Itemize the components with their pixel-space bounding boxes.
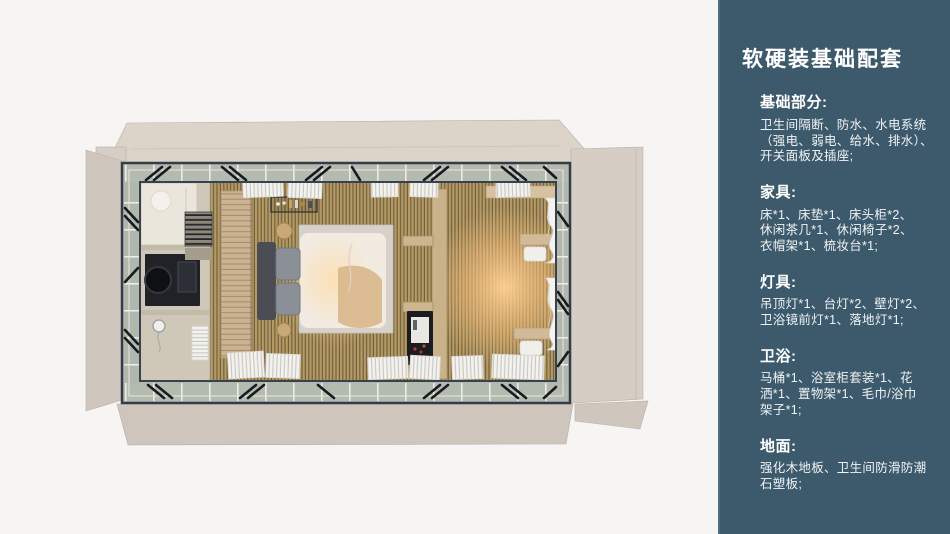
spec-section-heading: 家具:	[760, 183, 938, 203]
spec-section-flooring: 地面: 强化木地板、卫生间防滑防潮 石塑板;	[760, 437, 938, 493]
spec-section-bathroom: 卫浴: 马桶*1、浴室柜套装*1、花 洒*1、置物架*1、毛巾/浴巾 架子*1;	[760, 347, 938, 419]
vanity-mirror	[145, 267, 171, 293]
panel-right-wing	[571, 147, 643, 403]
spec-section-body: 吊顶灯*1、台灯*2、壁灯*2、 卫浴镜前灯*1、落地灯*1;	[760, 297, 938, 329]
bed-blanket	[338, 266, 382, 328]
spec-section-body: 强化木地板、卫生间防滑防潮 石塑板;	[760, 461, 938, 493]
spec-section-body: 卫生间隔断、防水、水电系统 （强电、弱电、给水、排水）、 开关面板及插座;	[760, 118, 938, 165]
towel-roll	[151, 191, 171, 211]
panel-bottom	[117, 404, 573, 445]
bed-pillow	[276, 283, 300, 315]
spec-section-furniture: 家具: 床*1、床垫*1、床头柜*2、 休闲茶几*1、休闲椅子*2、 衣帽架*1…	[760, 183, 938, 255]
bedside-stool	[277, 323, 291, 337]
spec-section-body: 马桶*1、浴室柜套装*1、花 洒*1、置物架*1、毛巾/浴巾 架子*1;	[760, 371, 938, 418]
room-interior	[140, 177, 580, 381]
spec-section-basics: 基础部分: 卫生间隔断、防水、水电系统 （强电、弱电、给水、排水）、 开关面板及…	[760, 93, 938, 165]
spec-section-heading: 卫浴:	[760, 347, 938, 367]
spec-section-lighting: 灯具: 吊顶灯*1、台灯*2、壁灯*2、 卫浴镜前灯*1、落地灯*1;	[760, 273, 938, 329]
spec-section-heading: 灯具:	[760, 273, 938, 293]
spec-section-body: 床*1、床垫*1、床头柜*2、 休闲茶几*1、休闲椅子*2、 衣帽架*1、梳妆台…	[760, 208, 938, 255]
panel-left-wing	[86, 150, 122, 411]
sidebar-title: 软硬装基础配套	[742, 46, 938, 73]
shower-head	[153, 320, 165, 332]
panel-top	[111, 120, 587, 164]
bedside-stool	[276, 223, 292, 239]
bed-pillow	[276, 248, 300, 280]
spec-section-heading: 地面:	[760, 437, 938, 457]
platform-shadow	[250, 191, 253, 358]
room-render-svg	[0, 0, 718, 534]
spec-section-heading: 基础部分:	[760, 93, 938, 113]
slide-page: 软硬装基础配套 基础部分: 卫生间隔断、防水、水电系统 （强电、弱电、给水、排水…	[0, 0, 950, 534]
wood-platform	[221, 191, 252, 358]
render-pane	[0, 0, 718, 534]
bed-headboard	[257, 242, 276, 320]
spec-sections: 基础部分: 卫生间隔断、防水、水电系统 （强电、弱电、给水、排水）、 开关面板及…	[742, 93, 938, 492]
vanity-sink	[178, 262, 196, 292]
towel-radiator	[185, 212, 212, 246]
info-sidebar: 软硬装基础配套 基础部分: 卫生间隔断、防水、水电系统 （强电、弱电、给水、排水…	[718, 0, 950, 534]
